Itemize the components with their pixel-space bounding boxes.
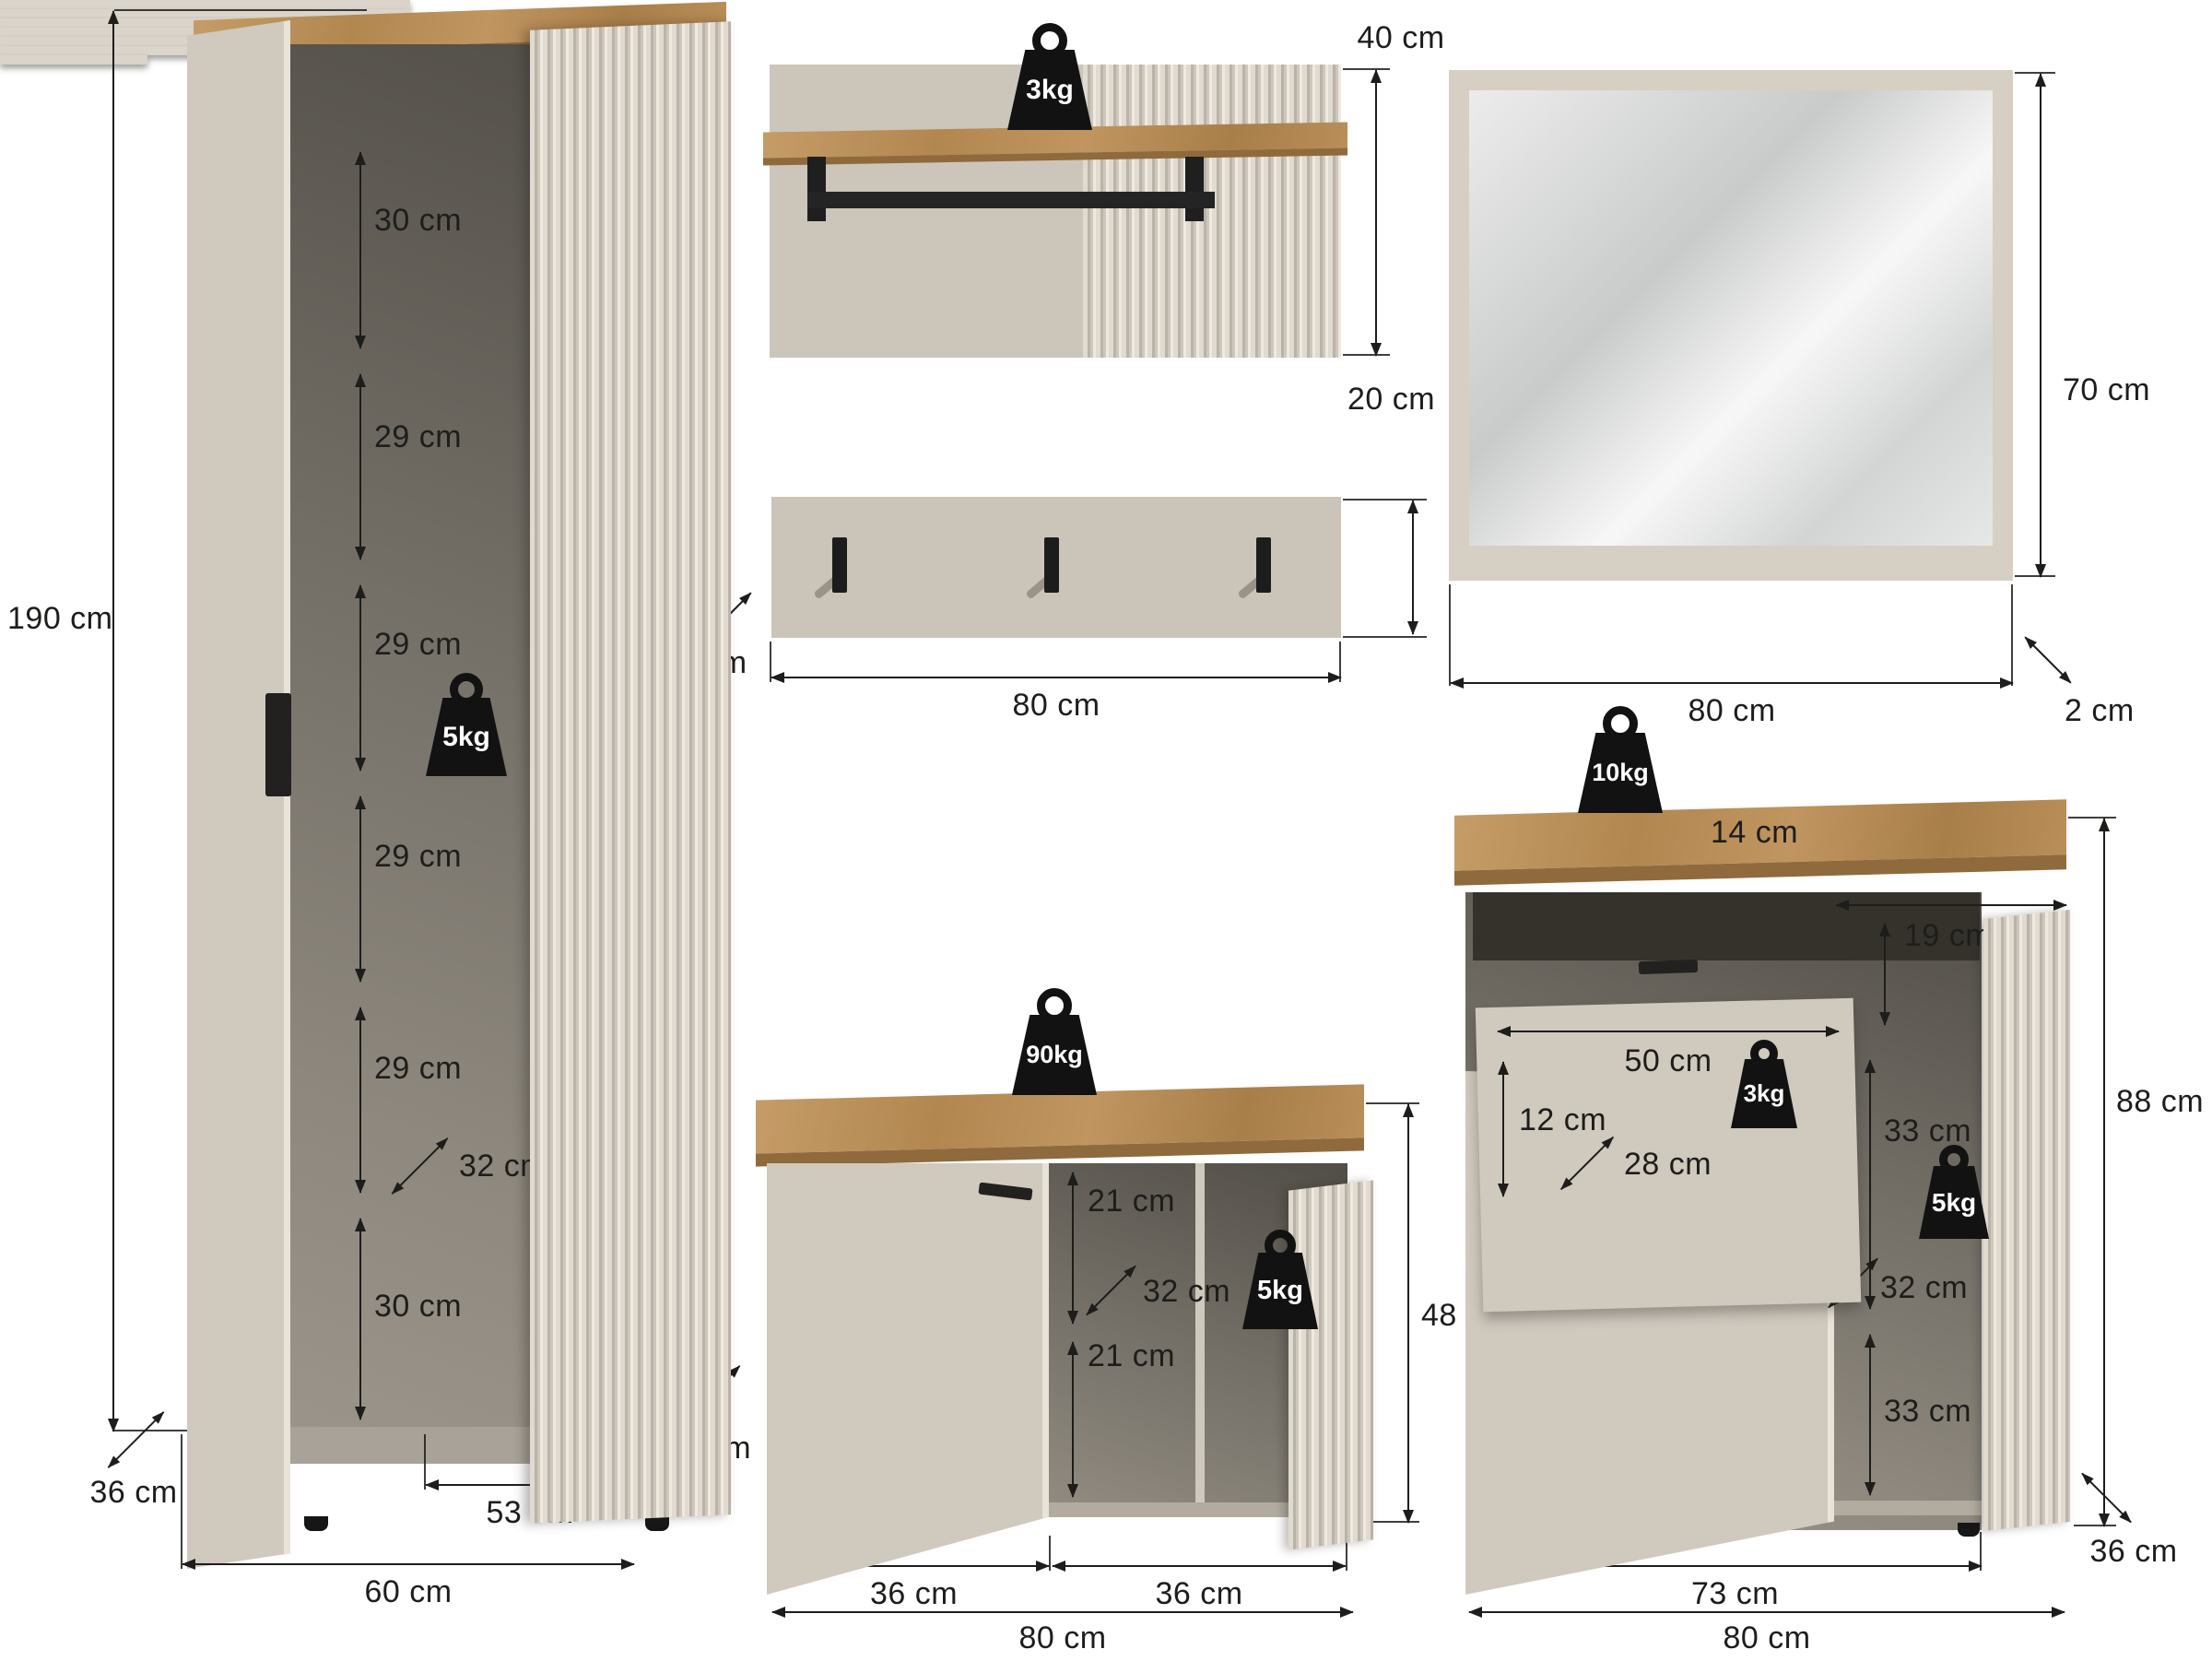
cabinet-drawer-depth-label: 28 cm [1624,1147,1712,1183]
weight-icon: 5kg [426,673,507,776]
cabinet-drawer-side-gap-label: 19 cm [1904,918,1992,954]
weight-body: 5kg [1242,1253,1318,1329]
bench-lower-gap-label: 21 cm [1088,1338,1175,1374]
wallshelf-height-ext-bottom [1343,354,1390,356]
wardrobe-foot [645,1516,669,1531]
wardrobe-compartment-label: 29 cm [374,419,462,455]
weight-body: 3kg [1007,50,1092,130]
cabinet-height-ext-bottom [2074,1525,2116,1526]
cabinet-height-dimension [2103,819,2105,1526]
cabinet-drawer-height-label: 12 cm [1519,1102,1606,1138]
wardrobe-compartment-arrow [359,1219,361,1420]
weight-icon: 10kg [1578,706,1663,813]
hookpanel-height-label: 20 cm [1347,382,1435,418]
weight-icon: 90kg [1012,988,1097,1095]
weight-body: 3kg [1731,1059,1797,1128]
cabinet-drawer-handle [1639,960,1698,974]
cabinet-lower-gap-label: 33 cm [1884,1394,1971,1430]
wardrobe-compartment-arrow [359,374,361,560]
bench-divider [1195,1163,1205,1517]
cabinet-floor [1834,1501,1982,1515]
hookpanel-width-dimension [771,677,1341,678]
cabinet-top-rail-label: 14 cm [1711,815,1798,851]
mirror-width-ext [2011,584,2013,686]
cabinet-fluted-door [1983,910,2070,1531]
bench-lower-gap-arrow [1072,1342,1074,1497]
furniture-dimension-diagram: 190 cm 30 cm 29 cm 29 cm 29 cm 29 cm 30 … [0,0,2212,1661]
weight-body: 5kg [426,698,507,776]
cabinet-drawer-side-gap-dimension [1836,904,2066,906]
weight-body: 5kg [1919,1166,1989,1239]
bench-width-dimension [772,1611,1353,1613]
wardrobe-compartment-arrow [359,796,361,982]
wallshelf-rail-bracket [807,157,826,221]
wardrobe-compartment-arrow [359,152,361,348]
coat-hook [832,537,847,593]
mirror-width-dimension [1451,682,2013,684]
mirror-depth-arrow [2025,637,2072,684]
weight-body: 10kg [1578,733,1663,813]
wardrobe-height-ext-bottom [114,1430,190,1431]
cabinet-inner-depth-label: 32 cm [1880,1270,1968,1306]
hookpanel-height-ext-bottom [1343,636,1427,638]
wardrobe-width-dimension [182,1563,634,1565]
wardrobe-compartment-label: 29 cm [374,839,462,875]
weight-label: 5kg [1932,1188,1976,1218]
bench-upper-gap-arrow [1072,1172,1074,1324]
mirror-height-dimension [2040,74,2041,577]
wallshelf-height-ext-top [1343,68,1390,70]
weight-body: 90kg [1012,1015,1097,1095]
weight-label: 5kg [1257,1276,1303,1306]
bench-door-width-label: 36 cm [779,1576,1049,1612]
bench-open-door-left [767,1163,1049,1595]
cabinet-depth-label: 36 cm [2065,1534,2203,1570]
cabinet-lower-gap-arrow [1869,1335,1871,1495]
wardrobe-height-label: 190 cm [7,601,113,637]
cabinet-drawer-width-dimension [1498,1031,1839,1032]
wardrobe-compartment-label: 29 cm [374,1051,462,1087]
wardrobe-compartment-label: 29 cm [374,627,462,663]
weight-icon: 3kg [1007,23,1092,130]
cabinet-upper-gap-arrow [1869,1060,1871,1309]
bench-door-width-label: 36 cm [1053,1576,1346,1612]
cabinet-width-dimension [1469,1611,2065,1613]
bench-inner-depth-label: 32 cm [1143,1274,1230,1310]
coat-hook [1044,537,1059,593]
bench-wood-top [756,1084,1364,1170]
weight-label: 3kg [1744,1079,1785,1108]
mirror-glass [1469,90,1993,546]
wardrobe-compartment-label: 30 cm [374,1289,462,1325]
bench-width-label: 80 cm [772,1620,1353,1656]
bench-door-width-dimension [1053,1565,1346,1567]
mirror-width-ext [1449,584,1451,686]
weight-label: 5kg [442,722,490,753]
mirror-width-label: 80 cm [1451,693,2013,729]
weight-icon: 3kg [1731,1040,1797,1128]
wardrobe-width-ext [181,1434,182,1569]
bench-height-dimension [1407,1104,1409,1523]
wallshelf-hanging-rail [807,192,1215,208]
weight-label: 10kg [1592,759,1649,787]
wardrobe-compartment-arrow [359,585,361,771]
cabinet-height-label: 88 cm [2116,1084,2204,1120]
coat-hook [1256,537,1271,593]
cabinet-top-rail-arrow [1884,924,1886,1025]
cabinet-foot [1958,1523,1980,1537]
weight-label: 90kg [1026,1041,1083,1069]
wallshelf-height-label: 40 cm [1318,20,1484,56]
wardrobe-compartment-label: 30 cm [374,203,462,239]
mirror-height-label: 70 cm [2063,372,2150,408]
wardrobe-height-ext-top [114,9,367,11]
wardrobe-height-dimension [112,11,114,1431]
mirror-depth-label: 2 cm [2065,693,2135,729]
wardrobe-compartment-arrow [359,1007,361,1193]
cabinet-drawer-height-arrow [1502,1062,1504,1196]
weight-label: 3kg [1026,75,1074,106]
cabinet-shelf [0,55,147,65]
wardrobe-fluted-door [530,21,731,1524]
wardrobe-door-handle [265,693,291,796]
wallshelf-rail-bracket [1185,157,1204,221]
cabinet-width-label: 80 cm [1469,1620,2065,1656]
hookpanel-height-dimension [1412,501,1414,634]
wardrobe-shelf [0,0,410,9]
hookpanel-width-label: 80 cm [771,688,1341,724]
weight-icon: 5kg [1242,1230,1318,1329]
wardrobe-width-label: 60 cm [182,1574,634,1610]
cabinet-inner-width-label: 73 cm [1488,1576,1982,1612]
wallshelf-height-dimension [1375,70,1377,356]
wallshelf-fluted-section [1083,65,1341,358]
bench-door-edge [1042,1163,1049,1595]
wardrobe-foot [304,1516,328,1531]
bench-upper-gap-label: 21 cm [1088,1184,1175,1219]
weight-icon: 5kg [1919,1145,1989,1239]
